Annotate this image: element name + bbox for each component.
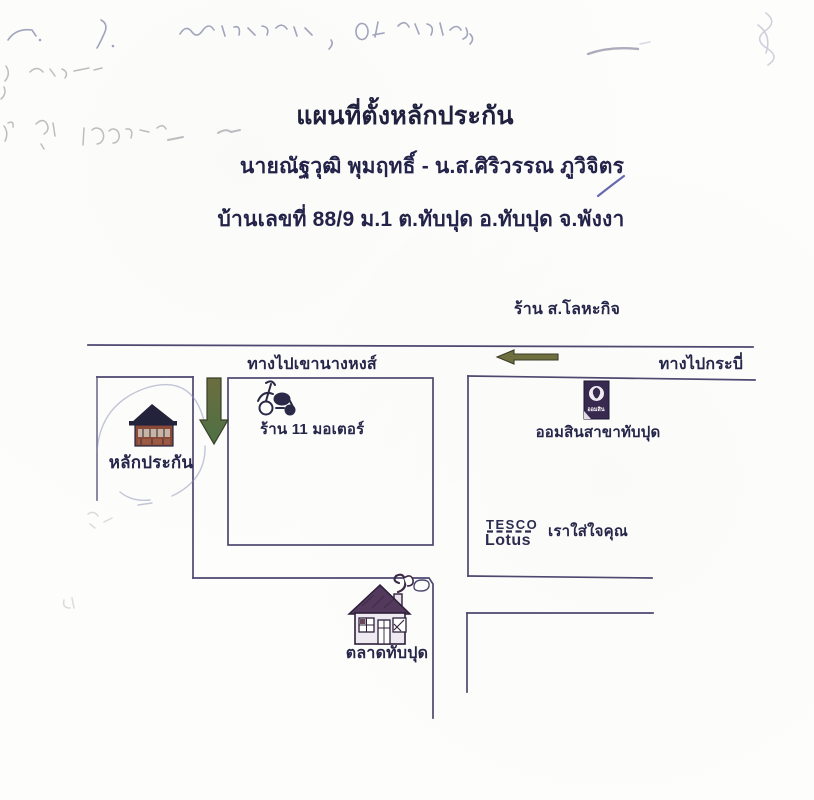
label-metal-shop: ร้าน ส.โลหะกิจ <box>514 297 620 322</box>
collateral-house-icon <box>129 404 177 446</box>
motorcycle-icon <box>258 381 295 414</box>
tesco-logo-text: TESCO <box>486 517 538 532</box>
market-house-icon <box>349 575 413 644</box>
down-arrow-icon <box>200 378 228 444</box>
label-motor-shop: ร้าน 11 มอเตอร์ <box>260 417 364 441</box>
left-arrow-icon <box>497 350 558 364</box>
gsb-logo-text: ออมสิน <box>587 406 604 414</box>
lotus-logo-text: Lotus <box>485 532 531 550</box>
label-road-to-krabi: ทางไปกระบี่ <box>659 352 743 377</box>
label-collateral: หลักประกัน <box>109 449 193 476</box>
collateral-address: บ้านเลขที่ 88/9 ม.1 ต.ทับปุด อ.ทับปุด จ.… <box>217 203 624 236</box>
label-road-to-khao-nang-hong: ทางไปเขานางหงส์ <box>247 352 377 377</box>
scanned-collateral-map-document: แผนที่ตั้งหลักประกัน นายณัฐวุฒิ พุมฤทธิ์… <box>0 0 814 800</box>
document-title: แผนที่ตั้งหลักประกัน <box>296 96 513 136</box>
label-tesco-slogan: เราใส่ใจคุณ <box>548 519 628 543</box>
owner-names: นายณัฐวุฒิ พุมฤทธิ์ - น.ส.ศิริวรรณ ภูวิจ… <box>240 150 624 183</box>
handwriting-left-margin <box>1 66 240 608</box>
label-gsb-branch: ออมสินสาขาทับปุด <box>536 420 661 444</box>
label-market: ตลาดทับปุด <box>346 641 428 666</box>
corner-doodle <box>414 580 429 591</box>
handwriting-top-margin <box>8 13 774 65</box>
